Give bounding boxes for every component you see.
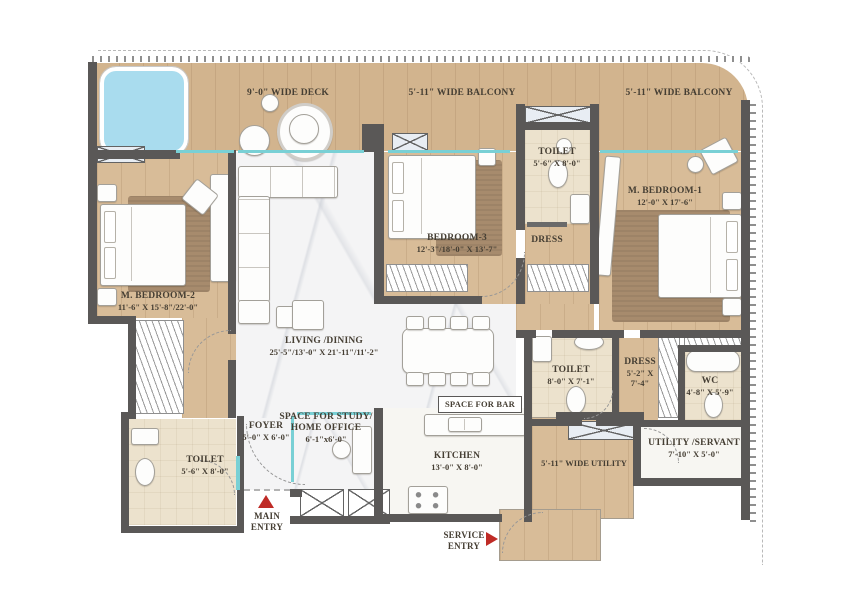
dining-chair [450, 316, 468, 330]
room-dims: 5'-6" X 8'-0" [533, 158, 580, 168]
blanket-divider [421, 158, 422, 234]
toilet-bedroom-3-label: TOILET 5'-6" X 8'-0" [533, 147, 580, 168]
room-name: M. BEDROOM-1 [628, 186, 702, 197]
pillow [726, 221, 738, 253]
balcony-right-label: 5'-11" WIDE BALCONY [625, 88, 732, 99]
room-name: BEDROOM-3 [417, 233, 498, 244]
shelf [532, 336, 552, 362]
wardrobe-closet [134, 320, 184, 414]
deck-label: 9'-0" WIDE DECK [247, 88, 329, 99]
wall-segment [516, 258, 525, 304]
wall-segment [633, 478, 748, 486]
bed [100, 204, 186, 286]
room-dims: 5'-2" X [624, 368, 656, 378]
wall-segment [121, 526, 244, 533]
wall-segment [290, 516, 390, 524]
pillow [392, 162, 404, 194]
shaft [300, 489, 344, 517]
service-entry-label: SERVICE ENTRY [443, 530, 484, 551]
wall-segment [590, 230, 599, 304]
wall-segment [516, 330, 536, 338]
entry-threshold [244, 489, 290, 491]
room-dims: 12'-3"/18'-0" X 13'-7" [417, 244, 498, 254]
entry-text: SERVICE [443, 530, 484, 541]
round-tub-inner [289, 114, 319, 144]
entry-text: ENTRY [251, 522, 283, 533]
service-entry-arrow-icon [486, 532, 498, 546]
wall-segment [678, 345, 748, 352]
main-entry-arrow-icon [258, 495, 274, 508]
wall-segment [524, 419, 582, 426]
window [238, 150, 364, 153]
room-dims: 4'-8" X 5'-9" [686, 387, 733, 397]
dress-m-bedroom-1-label: DRESS 5'-2" X 7'-4" [624, 357, 656, 388]
dining-chair [428, 372, 446, 386]
wide-utility-label: 5'-11" WIDE UTILITY [541, 458, 627, 468]
dining-table [402, 328, 494, 374]
wall-segment [92, 150, 180, 159]
wall-segment [640, 330, 741, 338]
pillow [104, 211, 116, 243]
room-name: TOILET [181, 455, 228, 466]
wall-segment [88, 62, 97, 320]
sofa-horizontal [238, 166, 338, 198]
dining-chair [406, 316, 424, 330]
room-name: M. BEDROOM-2 [118, 291, 198, 302]
dress-closet [527, 264, 589, 292]
bathtub [686, 350, 740, 372]
stove [408, 486, 448, 514]
room-name: SPACE FOR STUDY/ [279, 412, 372, 423]
window [176, 150, 234, 153]
wall-segment [741, 100, 750, 520]
door-frame [236, 456, 240, 490]
dining-chair [472, 316, 490, 330]
room-dims: 7'-4" [624, 378, 656, 388]
dining-chair [428, 316, 446, 330]
side-table [687, 156, 704, 173]
wall-segment [552, 330, 624, 338]
wall-segment [678, 352, 685, 422]
room-name: LIVING /DINING [269, 336, 378, 347]
wall-segment [374, 408, 383, 522]
wall-segment [527, 222, 567, 227]
blanket-divider [131, 207, 132, 281]
m-bedroom-2-label: M. BEDROOM-2 11'-6" X 15'-8"/22'-0" [118, 291, 198, 312]
wall-segment [516, 122, 599, 130]
vanity [570, 194, 590, 224]
bed [658, 214, 742, 298]
living-dining-label: LIVING /DINING 25'-5"/13'-0" X 21'-11"/1… [269, 336, 378, 357]
room-dims: 5'-6" X 8'-0" [181, 466, 228, 476]
space-for-bar-box: SPACE FOR BAR [438, 396, 522, 413]
room-dims: 12'-0" X 17'-6" [628, 197, 702, 207]
dining-chair [450, 372, 468, 386]
kitchen-label: KITCHEN 13'-0" X 8'-0" [431, 451, 482, 472]
sofa-ottoman [238, 300, 270, 324]
toilet-fixture [135, 458, 155, 486]
pillow [392, 200, 404, 232]
room-name: WC [686, 376, 733, 387]
bedroom-3-label: BEDROOM-3 12'-3"/18'-0" X 13'-7" [417, 233, 498, 254]
vanity [131, 428, 159, 445]
bedroom-3-closet [386, 264, 468, 292]
room-name: TOILET [533, 147, 580, 158]
wall-segment [374, 514, 502, 522]
shaft [348, 489, 390, 517]
balcony-center-label: 5'-11" WIDE BALCONY [408, 88, 515, 99]
wall-segment [290, 489, 302, 497]
coffee-table [292, 300, 324, 330]
floor-plan: 9'-0" WIDE DECK 5'-11" WIDE BALCONY 5'-1… [0, 0, 856, 599]
m-bedroom-1-label: M. BEDROOM-1 12'-0" X 17'-6" [628, 186, 702, 207]
room-name: DRESS [624, 357, 656, 368]
window [388, 150, 510, 153]
wall-segment [228, 150, 236, 334]
room-name: TOILET [547, 365, 594, 376]
entry-text: MAIN [251, 511, 283, 522]
room-name: HOME OFFICE [279, 423, 372, 434]
room-dims: 7'-10" X 5'-0" [648, 449, 740, 459]
room-dims: 25'-5"/13'-0" X 21'-11"/11'-2" [269, 347, 378, 357]
study-label: SPACE FOR STUDY/ HOME OFFICE 6'-1"x6'-0" [279, 412, 372, 444]
wall-segment [640, 420, 741, 427]
window [600, 150, 738, 153]
blanket-divider [710, 217, 711, 293]
room-name: UTILITY /SERVANT [648, 438, 740, 449]
pillow [104, 247, 116, 279]
sink-divider [464, 419, 465, 430]
pillow [726, 259, 738, 291]
toilet-common-label: TOILET 8'-0" X 7'-1" [547, 365, 594, 386]
sofa-vertical [238, 196, 270, 302]
wall-segment [524, 338, 532, 522]
room-name: KITCHEN [431, 451, 482, 462]
dining-chair [472, 372, 490, 386]
dress-closet-2 [658, 336, 680, 418]
wall-segment [228, 360, 236, 418]
nightstand [97, 288, 117, 306]
main-entry-label: MAIN ENTRY [251, 511, 283, 532]
room-dims: 13'-0" X 8'-0" [431, 462, 482, 472]
room-dims: 8'-0" X 7'-1" [547, 376, 594, 386]
room-dims: 6'-1"x6'-0" [279, 434, 372, 444]
room-dims: 11'-6" X 15'-8"/22'-0" [118, 302, 198, 312]
wc-label: WC 4'-8" X 5'-9" [686, 376, 733, 397]
space-for-bar-label: SPACE FOR BAR [439, 397, 521, 411]
wall-segment [633, 420, 641, 484]
parapet-hatch-top [92, 56, 752, 62]
wall-segment [612, 338, 619, 422]
nightstand [722, 298, 742, 316]
shaft [392, 133, 428, 151]
wall-segment [121, 412, 129, 533]
wall-segment [362, 124, 384, 152]
utility-servant-label: UTILITY /SERVANT 7'-10" X 5'-0" [648, 438, 740, 459]
entry-text: ENTRY [443, 541, 484, 552]
dining-chair [406, 372, 424, 386]
toilet-entry-label: TOILET 5'-6" X 8'-0" [181, 455, 228, 476]
dress-bedroom-3-label: DRESS [531, 235, 563, 246]
kitchen-sink [448, 417, 482, 432]
nightstand [97, 184, 117, 202]
wall-segment [128, 316, 136, 419]
wall-segment [556, 412, 644, 420]
toilet-fixture [566, 386, 586, 414]
wall-segment [374, 296, 482, 304]
parapet-hatch-right [750, 102, 756, 522]
bed [388, 155, 476, 239]
nightstand [722, 192, 742, 210]
jacuzzi [100, 67, 188, 155]
